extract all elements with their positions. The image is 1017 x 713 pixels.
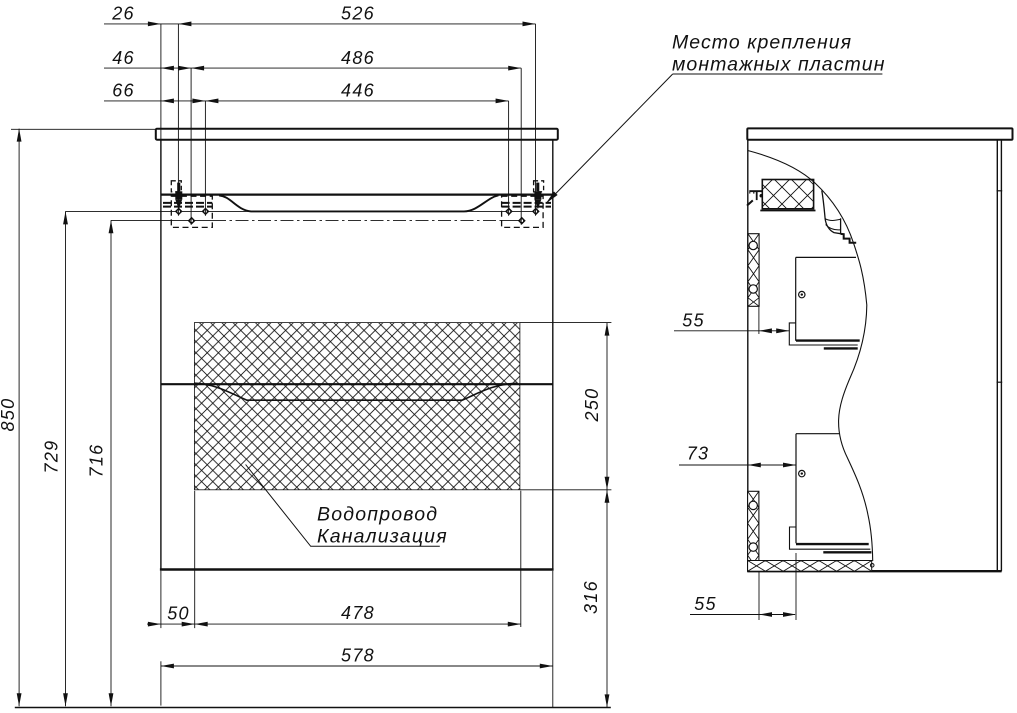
svg-text:73: 73 bbox=[687, 444, 710, 464]
svg-text:729: 729 bbox=[42, 440, 62, 474]
svg-text:478: 478 bbox=[341, 603, 375, 623]
svg-text:486: 486 bbox=[341, 48, 375, 68]
svg-text:716: 716 bbox=[86, 444, 106, 478]
svg-text:446: 446 bbox=[341, 81, 375, 101]
svg-text:50: 50 bbox=[167, 604, 190, 624]
svg-text:26: 26 bbox=[111, 4, 135, 24]
svg-text:46: 46 bbox=[112, 48, 135, 68]
svg-text:526: 526 bbox=[341, 4, 375, 24]
svg-text:Водопровод: Водопровод bbox=[317, 504, 438, 526]
svg-text:66: 66 bbox=[112, 81, 135, 101]
svg-text:Место крепления: Место крепления bbox=[672, 32, 852, 54]
svg-text:250: 250 bbox=[582, 388, 602, 423]
svg-text:55: 55 bbox=[682, 311, 705, 331]
svg-text:монтажных пластин: монтажных пластин bbox=[672, 54, 885, 76]
svg-text:316: 316 bbox=[581, 580, 601, 614]
svg-text:Канализация: Канализация bbox=[317, 525, 448, 547]
svg-text:850: 850 bbox=[0, 398, 18, 432]
svg-text:578: 578 bbox=[341, 646, 375, 666]
svg-text:55: 55 bbox=[694, 594, 717, 614]
